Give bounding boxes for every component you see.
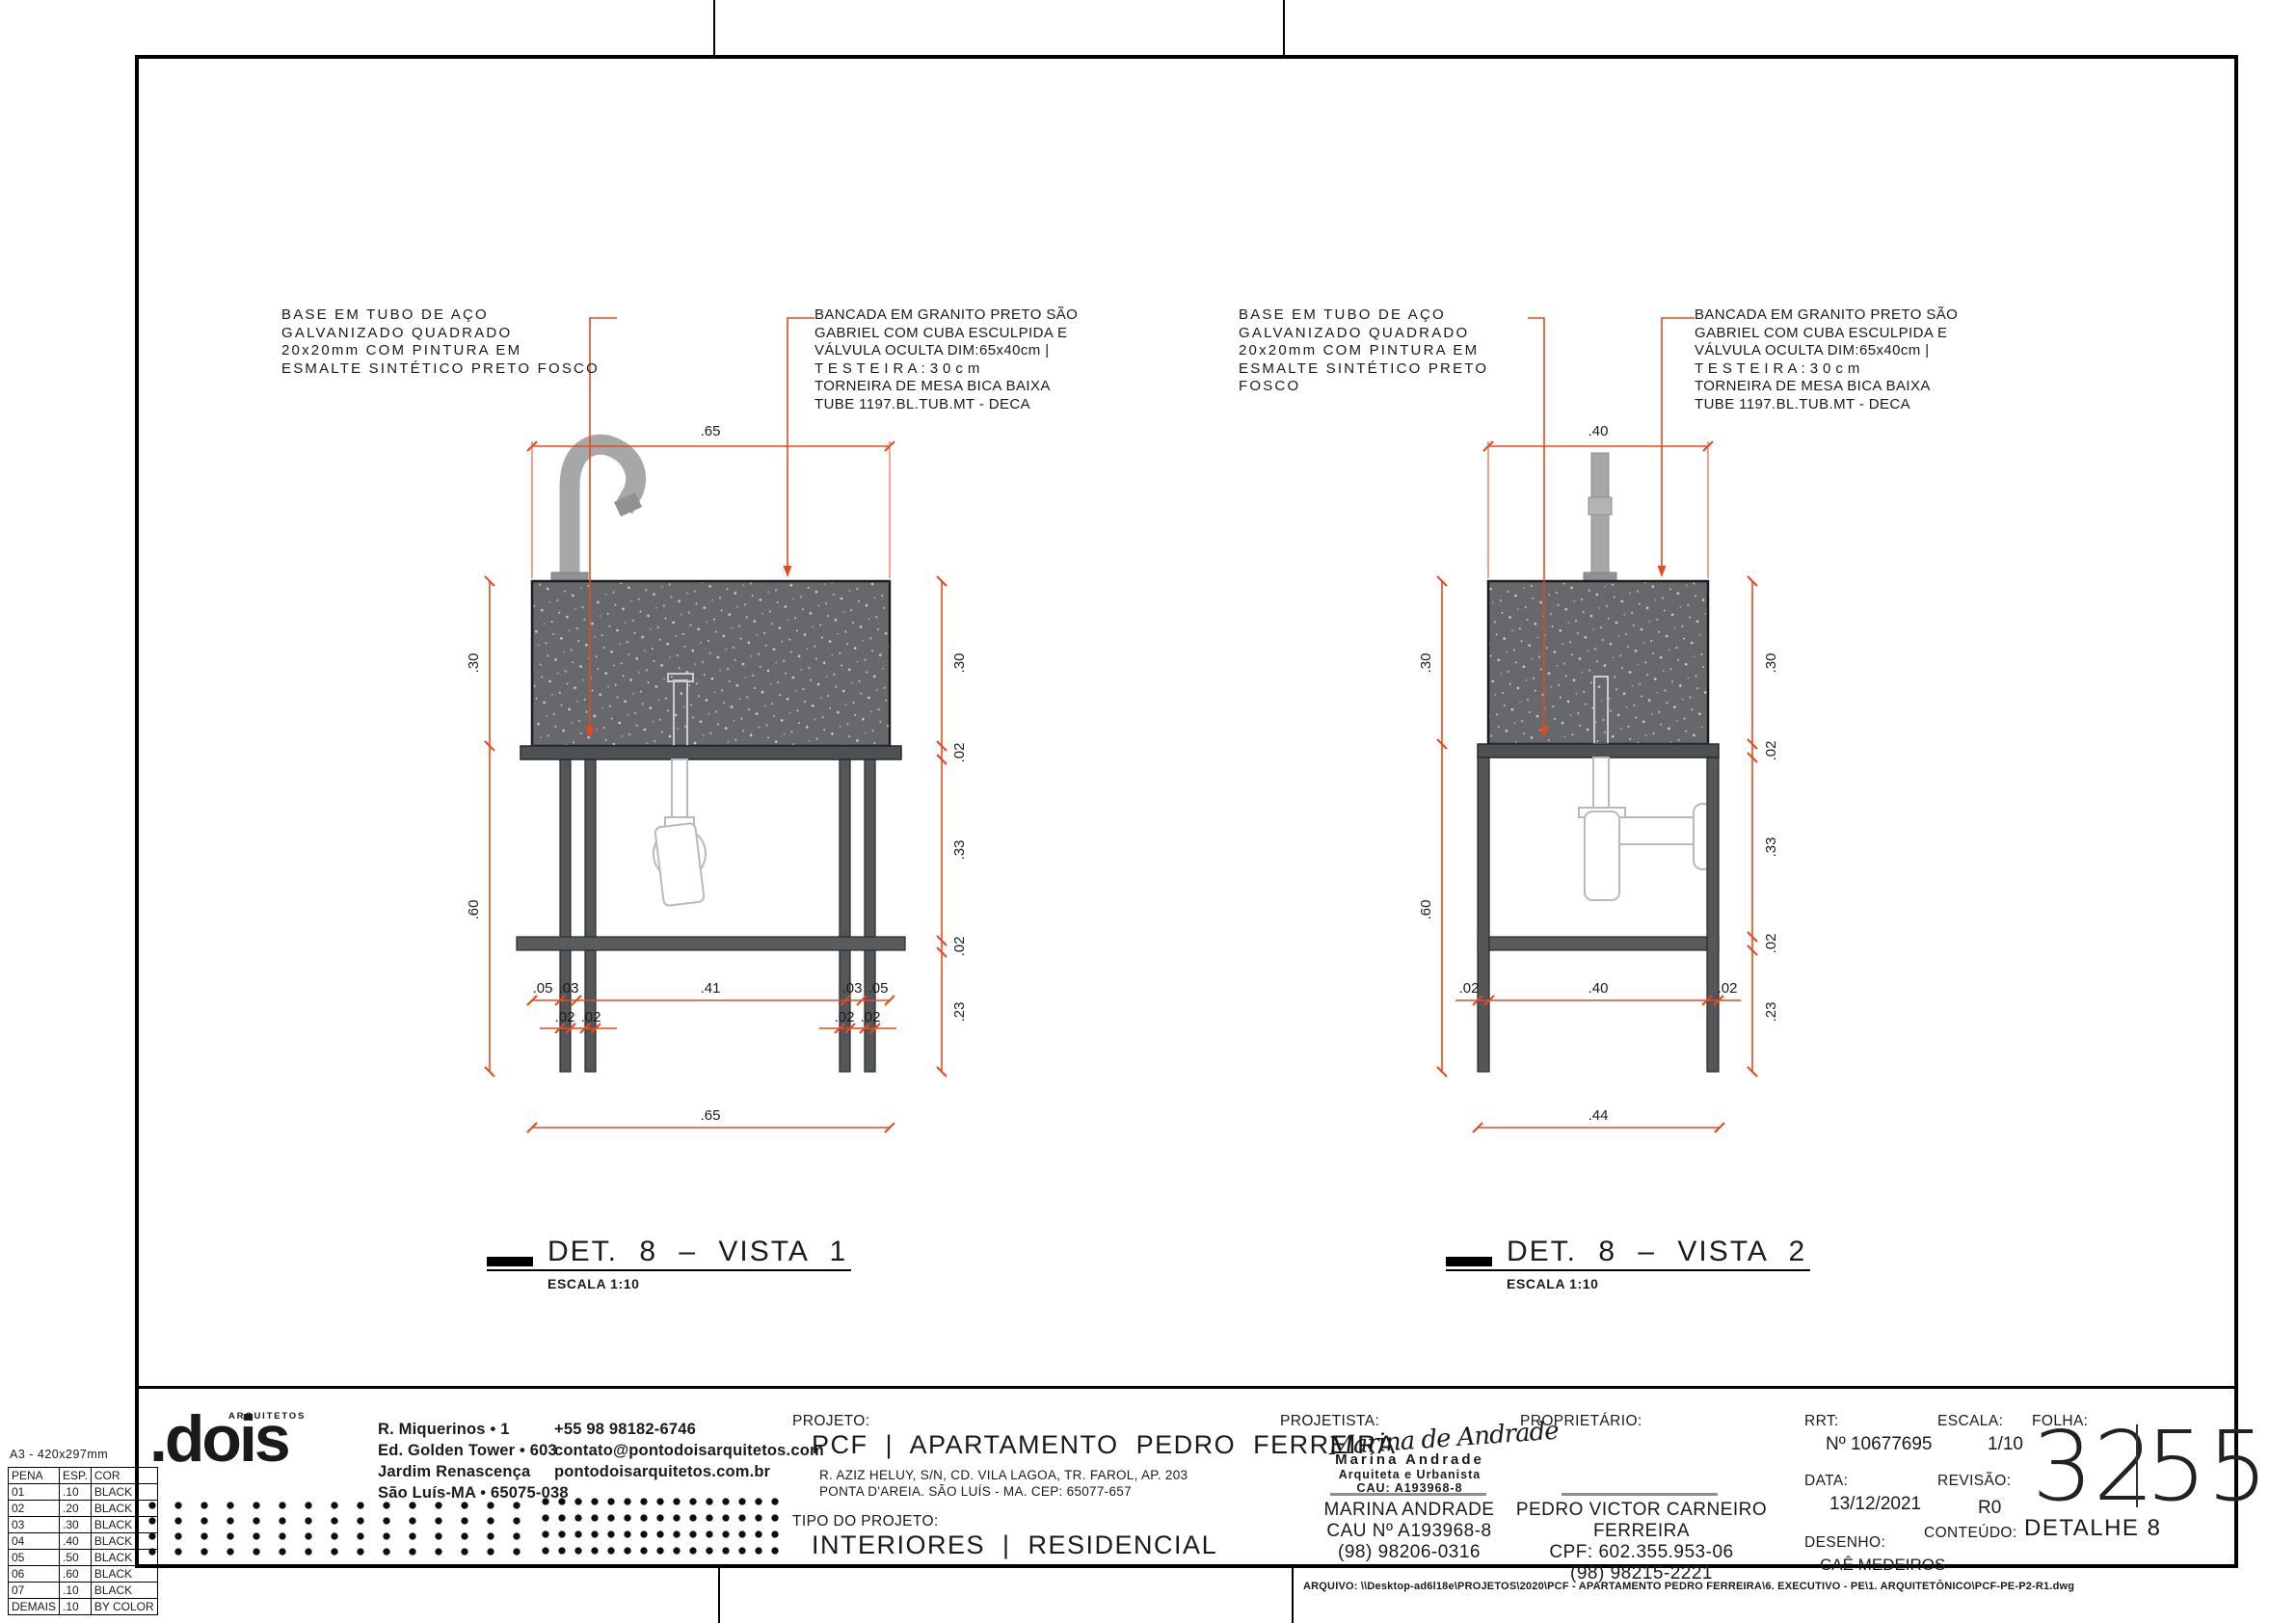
pen-table-row: 02.20BLACK bbox=[9, 1501, 158, 1517]
projeto-label: PROJETO: bbox=[792, 1413, 869, 1430]
dim-label: .02 bbox=[1763, 741, 1779, 761]
escala-value: 1/10 bbox=[1988, 1434, 2023, 1455]
escala-label: ESCALA: bbox=[1937, 1413, 2003, 1430]
pen-table-row: 07.10BLACK bbox=[9, 1583, 158, 1599]
dim-label: .03 bbox=[559, 980, 579, 997]
projetista-nome: MARINA ANDRADE bbox=[1303, 1500, 1515, 1521]
projetista-stamp: Marina Andrade Arquiteta e Urbanista CAU… bbox=[1330, 1451, 1489, 1495]
pen-table-row: 04.40BLACK bbox=[9, 1533, 158, 1550]
rrt-label: RRT: bbox=[1804, 1413, 1839, 1430]
pen-table-row: 05.50BLACK bbox=[9, 1550, 158, 1566]
data-value: 13/12/2021 bbox=[1829, 1494, 1921, 1515]
dim-label: .02 bbox=[951, 937, 968, 957]
faucet-side-v2 bbox=[1591, 453, 1609, 582]
firm-logo: .dois ARQUITETOS bbox=[149, 1401, 342, 1507]
vista-2-drawing: .40 .30 .60 .30 .02 .33 .02 .23 .02 .40 … bbox=[1418, 318, 1779, 1128]
dim-label: .41 bbox=[701, 980, 721, 997]
annotation-base-v1: BASE EM TUBO DE AÇO GALVANIZADO QUADRADO… bbox=[281, 306, 628, 378]
dim-label: .02 bbox=[1763, 934, 1779, 954]
view2-title-bar bbox=[1446, 1257, 1492, 1266]
dim-label: .02 bbox=[835, 1009, 855, 1025]
proprietario-cpf: CPF: 602.355.953-06 bbox=[1497, 1542, 1786, 1563]
dim-label: .05 bbox=[868, 980, 889, 997]
siphon-trap-v1 bbox=[654, 759, 706, 906]
pen-col-header: COR bbox=[91, 1468, 157, 1484]
projetista-signature-line bbox=[1330, 1493, 1486, 1496]
annotation-bancada-v2: BANCADA EM GRANITO PRETO SÃO GABRIEL COM… bbox=[1695, 306, 2013, 414]
annotation-bancada-v1: BANCADA EM GRANITO PRETO SÃO GABRIEL COM… bbox=[814, 306, 1133, 414]
dim-label: .65 bbox=[701, 1107, 721, 1124]
detail-drawing-canvas: .65 .30 .60 .30 .02 .33 .02 .23 .05 .03 … bbox=[0, 0, 2296, 1388]
view1-title-bar bbox=[487, 1257, 533, 1266]
projetista-info: MARINA ANDRADE CAU Nº A193968-8 (98) 982… bbox=[1303, 1500, 1515, 1563]
desenho-label: DESENHO: bbox=[1804, 1534, 1885, 1552]
desenho-value: CAÊ MEDEIROS bbox=[1820, 1556, 1945, 1575]
projetista-label: PROJETISTA: bbox=[1280, 1413, 1379, 1430]
dim-label: .30 bbox=[1418, 653, 1434, 674]
dim-label: .40 bbox=[1589, 423, 1609, 439]
projetista-fone: (98) 98206-0316 bbox=[1303, 1542, 1515, 1563]
dim-label: .02 bbox=[951, 743, 968, 763]
tipo-projeto-value: INTERIORES | RESIDENCIAL bbox=[812, 1530, 1217, 1560]
firm-address: R. Miquerinos • 1 Ed. Golden Tower • 603… bbox=[378, 1419, 569, 1503]
conteudo-label: CONTEÚDO: bbox=[1924, 1525, 2017, 1542]
projeto-value: PCF | APARTAMENTO PEDRO FERREIRA bbox=[812, 1430, 1397, 1460]
crop-mark-bottom-left bbox=[718, 1568, 720, 1623]
dim-label: .30 bbox=[466, 653, 482, 674]
stamp-name: Marina Andrade bbox=[1330, 1451, 1489, 1468]
proprietario-nome: PEDRO VICTOR CARNEIRO FERREIRA bbox=[1497, 1500, 1786, 1542]
proprietario-label: PROPRIETÁRIO: bbox=[1520, 1413, 1642, 1430]
dim-label: .03 bbox=[842, 980, 863, 997]
dim-label: .60 bbox=[1418, 900, 1434, 920]
logo-dot-pattern-left bbox=[147, 1500, 528, 1559]
stamp-title: Arquiteta e Urbanista bbox=[1330, 1468, 1489, 1481]
dim-label: .30 bbox=[1763, 653, 1779, 674]
pen-table-row: 01.10BLACK bbox=[9, 1484, 158, 1501]
dim-label: .40 bbox=[1589, 980, 1609, 997]
pen-table-row: DEMAIS.10BY COLOR bbox=[9, 1599, 158, 1615]
stretcher-bar-v2 bbox=[1478, 937, 1719, 950]
logo-tagline: ARQUITETOS bbox=[228, 1411, 306, 1422]
annotation-base-v2: BASE EM TUBO DE AÇO GALVANIZADO QUADRADO… bbox=[1239, 306, 1537, 396]
revisao-label: REVISÃO: bbox=[1937, 1473, 2011, 1490]
file-path-note: ARQUIVO: \\Desktop-ad6l18e\PROJETOS\2020… bbox=[1303, 1581, 2277, 1592]
proprietario-signature-line bbox=[1562, 1493, 1718, 1496]
view1-underline bbox=[487, 1269, 851, 1271]
stretcher-bar-v1 bbox=[517, 937, 905, 950]
dim-label: .33 bbox=[1763, 838, 1779, 858]
revisao-value: R0 bbox=[1978, 1498, 2001, 1519]
pen-table-header: PENA ESP. COR bbox=[9, 1468, 158, 1484]
dim-label: .65 bbox=[701, 423, 721, 439]
dim-label: .44 bbox=[1589, 1107, 1609, 1124]
dim-label: .05 bbox=[533, 980, 553, 997]
paper-size-note: A3 - 420x297mm bbox=[10, 1448, 108, 1461]
drawing-sheet: { "sheet": { "pen_table": { "title": "A3… bbox=[0, 0, 2296, 1623]
pen-table-row: 03.30BLACK bbox=[9, 1517, 158, 1533]
view2-underline bbox=[1446, 1269, 1810, 1271]
view1-title: DET. 8 – VISTA 1 bbox=[547, 1236, 847, 1268]
dim-label: .30 bbox=[951, 653, 968, 674]
steel-legs-v1 bbox=[560, 759, 875, 1072]
view2-title: DET. 8 – VISTA 2 bbox=[1507, 1236, 1806, 1268]
firm-contacts: +55 98 98182-6746 contato@pontodoisarqui… bbox=[554, 1419, 824, 1482]
dim-label: .02 bbox=[861, 1009, 881, 1025]
vista-1-drawing: .65 .30 .60 .30 .02 .33 .02 .23 .05 .03 … bbox=[466, 318, 968, 1128]
faucet-joint-v2 bbox=[1589, 497, 1612, 515]
folha-divider bbox=[2136, 1424, 2138, 1507]
dim-label: .02 bbox=[1718, 980, 1738, 997]
pen-table: PENA ESP. COR 01.10BLACK 02.20BLACK 03.3… bbox=[8, 1467, 158, 1615]
logo-dot-pattern-right bbox=[540, 1496, 779, 1561]
pen-col-header: ESP. bbox=[60, 1468, 92, 1484]
granite-countertop-v1 bbox=[532, 581, 890, 746]
data-label: DATA: bbox=[1804, 1473, 1848, 1490]
folha-total: 55 bbox=[2146, 1419, 2268, 1515]
frame-top-rail-v1 bbox=[521, 746, 901, 759]
dim-label: .60 bbox=[466, 900, 482, 920]
dim-label: .23 bbox=[951, 1002, 968, 1023]
tipo-projeto-label: TIPO DO PROJETO: bbox=[792, 1513, 939, 1530]
dim-label: .33 bbox=[951, 840, 968, 861]
siphon-trap-v2 bbox=[1579, 758, 1713, 900]
projeto-endereco: R. AZIZ HELUY, S/N, CD. VILA LAGOA, TR. … bbox=[819, 1467, 1188, 1500]
view1-scale-label: ESCALA 1:10 bbox=[547, 1276, 640, 1291]
granite-countertop-v2 bbox=[1488, 581, 1708, 744]
pen-col-header: PENA bbox=[9, 1468, 60, 1484]
frame-top-rail-v2 bbox=[1478, 744, 1719, 758]
crop-mark-bottom-right bbox=[1292, 1568, 1294, 1623]
dim-label: .02 bbox=[581, 1009, 601, 1025]
view2-scale-label: ESCALA 1:10 bbox=[1507, 1276, 1599, 1291]
dim-label: .23 bbox=[1763, 1002, 1779, 1023]
rrt-value: Nº 10677695 bbox=[1826, 1434, 1932, 1455]
pen-table-row: 06.60BLACK bbox=[9, 1566, 158, 1583]
proprietario-info: PEDRO VICTOR CARNEIRO FERREIRA CPF: 602.… bbox=[1497, 1500, 1786, 1584]
projetista-cau: CAU Nº A193968-8 bbox=[1303, 1521, 1515, 1542]
dim-label: .02 bbox=[1459, 980, 1480, 997]
dim-label: .02 bbox=[555, 1009, 575, 1025]
